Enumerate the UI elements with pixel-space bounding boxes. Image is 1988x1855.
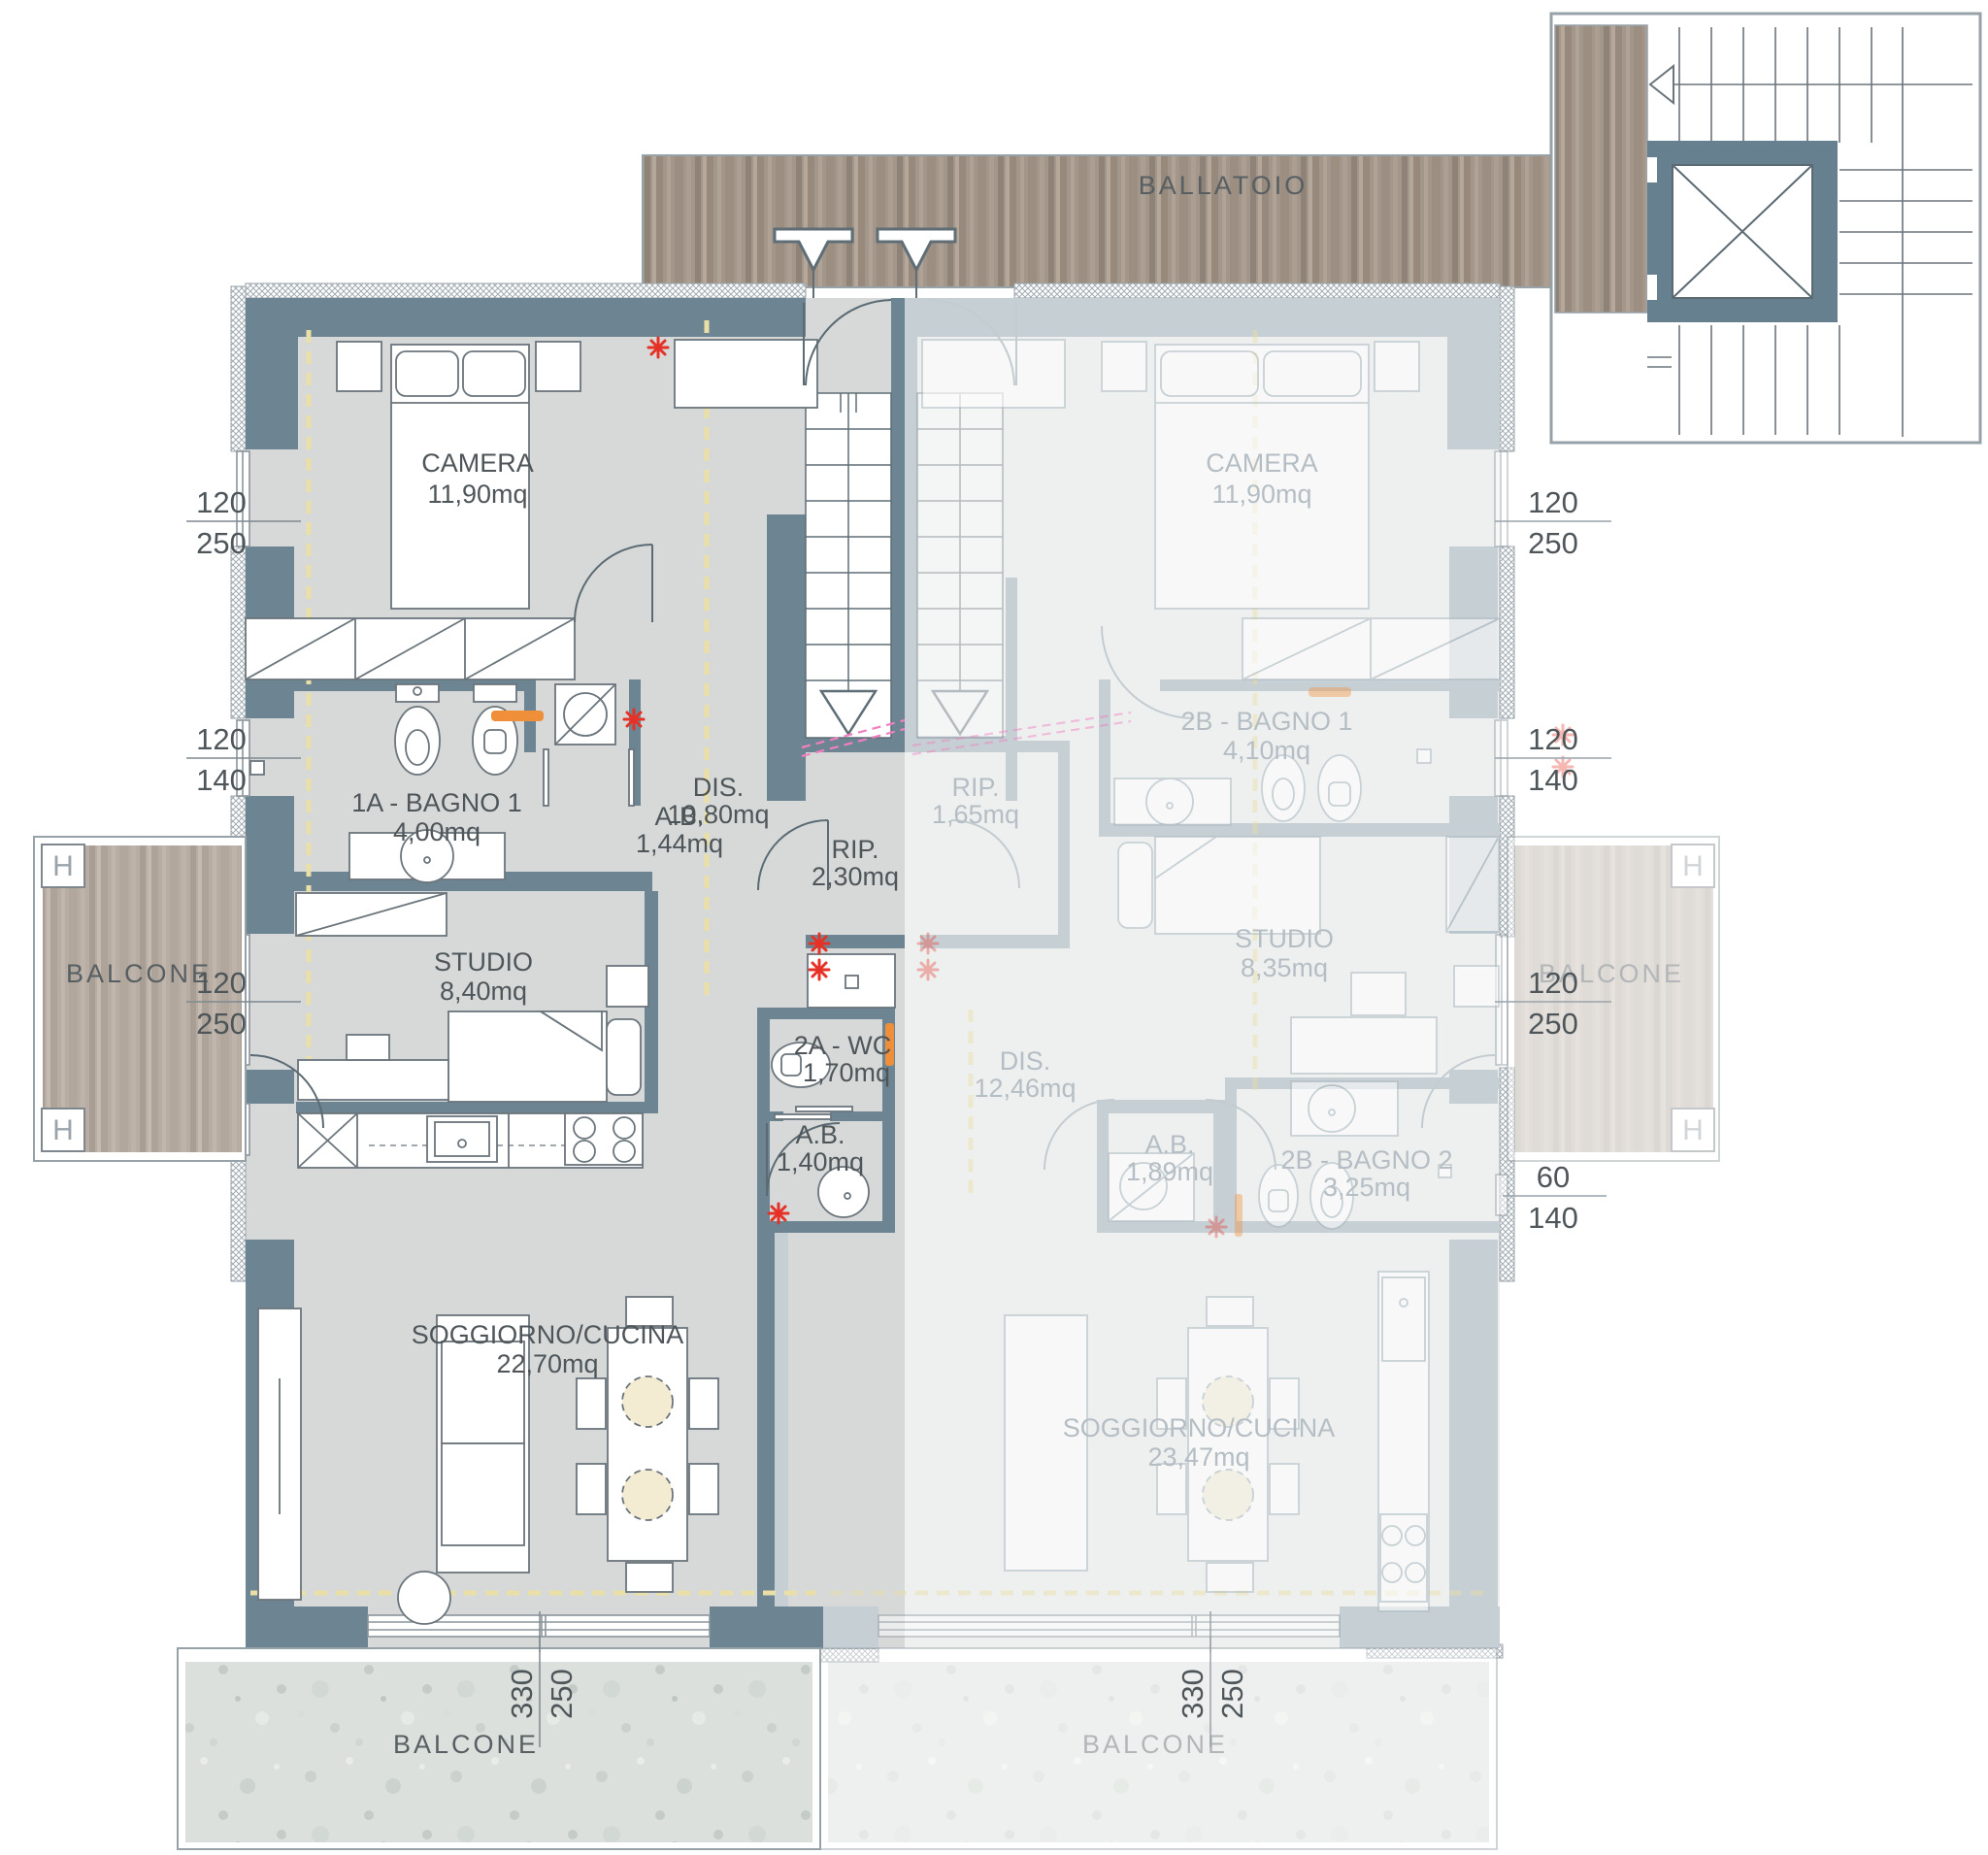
bagno1-label: 1A - BAGNO 1 — [351, 788, 522, 817]
bagno2-r-area: 3,25mq — [1323, 1173, 1410, 1202]
studio-r-area: 8,35mq — [1241, 953, 1328, 982]
h-marker: H — [52, 1114, 74, 1146]
studio-label: STUDIO — [434, 947, 533, 977]
wc-area: 1,70mq — [803, 1058, 890, 1087]
rip-label: RIP. — [831, 835, 878, 864]
wc-label: 2A - WC — [794, 1031, 892, 1060]
bagno1-r-area: 4,10mq — [1223, 736, 1310, 765]
single-bed-right — [1118, 837, 1320, 934]
h-marker: H — [1682, 1114, 1704, 1146]
ab-r-area: 1,89mq — [1126, 1157, 1213, 1186]
bidet-icon — [395, 684, 440, 775]
svg-text:140: 140 — [1528, 763, 1578, 797]
svg-text:140: 140 — [1528, 1201, 1578, 1235]
svg-text:120: 120 — [196, 485, 247, 519]
rip-area: 2,30mq — [812, 862, 899, 891]
soggiorno-area: 22,70mq — [496, 1349, 598, 1378]
dim-right-4: 60 140 — [1503, 1160, 1607, 1235]
dis-label: DIS. — [693, 773, 745, 802]
studio-area: 8,40mq — [440, 977, 527, 1006]
elevator-icon — [1647, 141, 1838, 322]
shelf-niche — [607, 966, 648, 1007]
dis-r-area: 12,46mq — [974, 1074, 1076, 1103]
soggiorno-label: SOGGIORNO/CUCINA — [412, 1320, 684, 1349]
ab2-label: A.B. — [795, 1120, 845, 1149]
pouf — [398, 1572, 450, 1624]
studio-wardrobe — [296, 893, 447, 936]
wardrobe-right — [1242, 618, 1500, 679]
balcone-bottom-right-label: BALCONE — [1082, 1730, 1228, 1759]
svg-text:120: 120 — [1528, 966, 1578, 1000]
h-marker: H — [52, 850, 74, 882]
svg-text:120: 120 — [1528, 722, 1578, 756]
bagno1-area: 4,00mq — [393, 817, 480, 846]
camera-area: 11,90mq — [427, 480, 527, 509]
shaft-detail — [250, 761, 264, 775]
soggiorno-r-label: SOGGIORNO/CUCINA — [1063, 1413, 1336, 1442]
svg-text:250: 250 — [1215, 1669, 1249, 1719]
svg-text:250: 250 — [1528, 1007, 1578, 1041]
soggiorno-r-area: 23,47mq — [1147, 1442, 1249, 1472]
svg-text:250: 250 — [1528, 526, 1578, 560]
balcone-bottom-left-label: BALCONE — [393, 1730, 539, 1759]
svg-text:330: 330 — [1176, 1669, 1209, 1719]
balcone-left-label: BALCONE — [66, 959, 212, 988]
entry-closet — [675, 340, 817, 408]
bagno1-r-label: 2B - BAGNO 1 — [1180, 707, 1352, 736]
floorplan-page: { "plan": { "circulation": { "ballatoio"… — [0, 0, 1988, 1855]
desk — [298, 1060, 448, 1100]
ab-r-label: A.B. — [1144, 1130, 1194, 1159]
nightstand — [536, 342, 580, 391]
svg-text:120: 120 — [1528, 485, 1578, 519]
svg-text:140: 140 — [196, 763, 247, 797]
toilet-icon — [473, 684, 517, 775]
shaft-detail — [845, 976, 858, 988]
balcony-bottom-right: BALCONE — [820, 1648, 1497, 1849]
rip-r-label: RIP. — [951, 773, 999, 802]
unit-left-internal-stair — [806, 393, 891, 738]
floorplan-drawing: BALLATOIO — [0, 0, 1988, 1855]
camera-r-label: CAMERA — [1206, 448, 1318, 478]
studio-r-label: STUDIO — [1235, 924, 1334, 953]
kitchen-counter — [298, 1113, 643, 1168]
dim-right-2: 120 140 — [1495, 722, 1611, 797]
ballatoio-label: BALLATOIO — [1139, 171, 1309, 200]
svg-text:330: 330 — [505, 1669, 539, 1719]
bagno2-r-label: 2B - BAGNO 2 — [1280, 1145, 1452, 1175]
stove-right — [1380, 1514, 1427, 1602]
single-bed — [448, 1011, 641, 1102]
stair-landing-wood — [1555, 25, 1647, 313]
svg-text:120: 120 — [196, 966, 247, 1000]
camera-label: CAMERA — [421, 448, 534, 478]
svg-text:250: 250 — [545, 1669, 579, 1719]
h-marker: H — [1682, 850, 1704, 882]
svg-text:60: 60 — [1537, 1160, 1570, 1194]
desk-chair — [347, 1035, 389, 1060]
ab2-area: 1,40mq — [777, 1147, 864, 1176]
sliding-door — [775, 1114, 831, 1119]
camera-r-area: 11,90mq — [1211, 480, 1311, 509]
wardrobe — [246, 618, 575, 679]
dis-r-label: DIS. — [1000, 1046, 1051, 1076]
stove-icon — [565, 1113, 643, 1165]
svg-text:250: 250 — [196, 526, 247, 560]
unit-right-internal-stair — [917, 393, 1003, 738]
dis-area: 10,80mq — [667, 800, 769, 829]
ab1-area: 1,44mq — [636, 829, 723, 858]
rip-r-area: 1,65mq — [932, 800, 1019, 829]
nightstand — [337, 342, 381, 391]
stairwell-core — [1551, 14, 1980, 443]
svg-text:250: 250 — [196, 1007, 247, 1041]
balcony-bottom-left: BALCONE — [178, 1648, 820, 1849]
svg-text:120: 120 — [196, 722, 247, 756]
sliding-door — [796, 1107, 852, 1111]
